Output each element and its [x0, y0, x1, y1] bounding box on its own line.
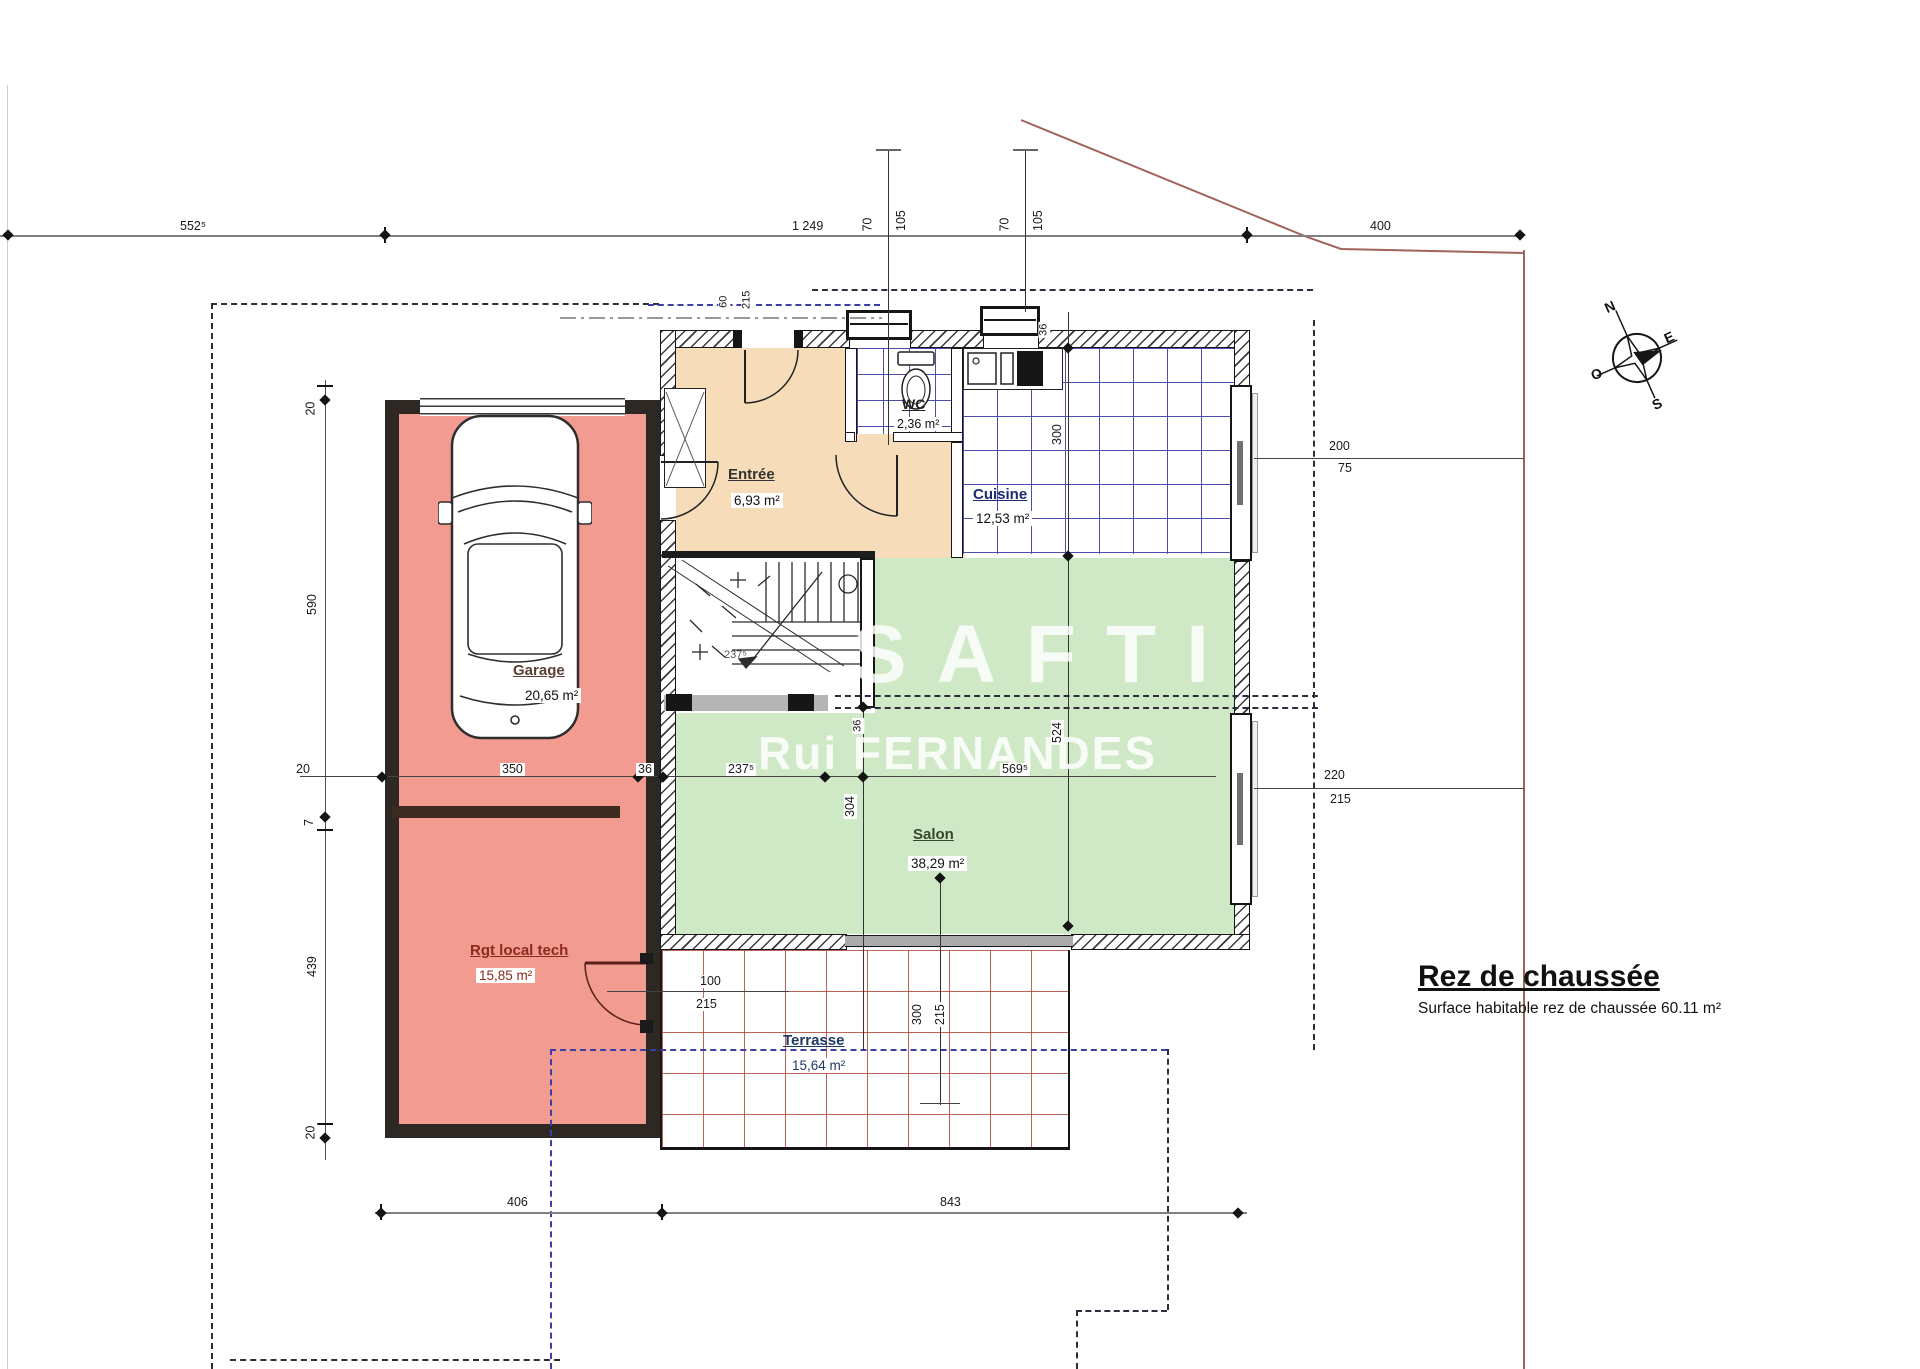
wc-window [846, 310, 912, 340]
dim-label: 237⁵ [722, 650, 749, 662]
dim-label: 590 [306, 592, 319, 617]
dim-label: 36 [1038, 322, 1050, 338]
dim-label: 20 [304, 1124, 317, 1142]
grid-line-1025 [1025, 150, 1026, 312]
dim-label: 406 [505, 1196, 530, 1209]
wc-bottom-wall-stub [845, 432, 855, 442]
dim-tick [2, 229, 13, 240]
dim-label: 36 [636, 763, 654, 776]
watermark-brand: SAFTI [852, 608, 1239, 702]
terrace-door-band [845, 935, 1073, 947]
blue-dash-entry [648, 304, 880, 306]
dim-label: 439 [306, 954, 319, 979]
kitchen-top-window-glazing [984, 319, 1036, 321]
entree-closet [664, 388, 706, 488]
boundary-dash-left [211, 303, 213, 1369]
blue-dash-terrace [550, 1049, 1167, 1051]
room-area-cuisine: 12,53 m² [973, 511, 1032, 526]
wc-bottom-wall [893, 432, 963, 442]
dim-label: 105 [895, 208, 908, 233]
kitchen-top-window [980, 306, 1040, 336]
watermark-agent: Rui FERNANDES [758, 726, 1157, 780]
boundary-step-v2 [1076, 1310, 1078, 1369]
dim-tick [317, 385, 333, 387]
dim-tick [319, 1132, 330, 1143]
callout-window-salon [1254, 788, 1524, 789]
staircase [662, 556, 875, 698]
boundary-dash-top-left [211, 303, 659, 305]
dim-label: 300 [911, 1002, 924, 1027]
kitchen-window-sill [1252, 393, 1258, 553]
dim-label: 215 [934, 1002, 947, 1027]
dim-label: 75 [1336, 462, 1354, 475]
dim-label: 36 [852, 718, 864, 734]
dim-tick [661, 1204, 663, 1220]
grid-cap-1025 [1013, 149, 1038, 151]
dim-label: 20 [294, 763, 312, 776]
dim-tick [317, 1123, 333, 1125]
dim-label: 237⁵ [726, 763, 756, 776]
salon-window-sill [1252, 721, 1258, 897]
boundary-dash-right [1313, 320, 1315, 1050]
wall-bottom-1 [660, 934, 847, 950]
grid-line-888 [888, 150, 889, 445]
dim-label: 524 [1051, 720, 1064, 745]
dim-label: 70 [861, 216, 874, 234]
compass-rose-icon: N E S O [1562, 279, 1713, 437]
floor-plan: 552⁵ 1 249 70 105 70 105 400 20 590 7 43… [0, 0, 1920, 1369]
page-border-line [7, 85, 8, 1369]
dim-label: 215 [741, 289, 753, 311]
wall-bottom-2 [1071, 934, 1250, 950]
dim-tick [1232, 1207, 1243, 1218]
dim-label: 300 [1051, 422, 1064, 447]
property-line-vertical [1523, 250, 1525, 1369]
boundary-dash-bottom-left [230, 1359, 560, 1361]
room-label-wc: WC [902, 396, 925, 412]
kitchen-counter [963, 348, 1063, 390]
room-label-cuisine: Cuisine [973, 486, 1027, 503]
garage-partition-wall [392, 806, 620, 818]
room-label-local-tech: Rgt local tech [470, 942, 568, 959]
dim-tick [380, 1204, 382, 1220]
dim-label: 105 [1032, 208, 1045, 233]
dim-label: 70 [998, 216, 1011, 234]
dim-line-terrace-depth [940, 877, 941, 1105]
dim-label: 220 [1322, 769, 1347, 782]
wall-right-1 [1234, 330, 1250, 387]
entry-door-post-right [794, 330, 803, 348]
boundary-step-v1 [1167, 1049, 1169, 1310]
dim-label: 569⁵ [1000, 763, 1030, 776]
boundary-step-h [1076, 1310, 1167, 1312]
dim-label: 215 [694, 998, 719, 1011]
dim-label: 552⁵ [178, 220, 208, 233]
page-title: Rez de chaussée [1418, 960, 1660, 994]
room-area-wc: 2,36 m² [894, 417, 942, 431]
wc-window-glazing [850, 323, 908, 325]
dim-label: 60 [718, 294, 730, 310]
dim-label: 400 [1368, 220, 1393, 233]
room-area-salon: 38,29 m² [908, 856, 967, 871]
dim-tick [1246, 227, 1248, 243]
callout-tech-door [607, 991, 789, 992]
room-area-terrasse: 15,64 m² [789, 1058, 848, 1073]
room-area-entree: 6,93 m² [731, 493, 783, 508]
room-label-garage: Garage [513, 662, 565, 679]
dim-label: 350 [500, 763, 525, 776]
dim-tick [319, 811, 330, 822]
dim-label: 200 [1327, 440, 1352, 453]
upper-floor-outline-2 [835, 707, 1318, 709]
dim-line-left [325, 380, 326, 1160]
page-subtitle: Surface habitable rez de chaussée 60.11 … [1418, 1000, 1721, 1018]
wall-top-2 [798, 330, 850, 348]
dim-label: 1 249 [790, 220, 825, 233]
room-label-entree: Entrée [728, 466, 775, 483]
dim-tick [1514, 229, 1525, 240]
kitchen-window-glazing [1237, 441, 1243, 505]
room-area-local-tech: 15,85 m² [476, 968, 535, 983]
dim-label: 304 [844, 794, 857, 819]
dim-label: 20 [304, 400, 317, 418]
wall-top-3 [910, 330, 984, 348]
dim-tick [384, 227, 386, 243]
salon-window-glazing [1237, 773, 1243, 845]
room-label-terrasse: Terrasse [783, 1032, 844, 1049]
room-label-salon: Salon [913, 826, 954, 843]
wc-right-wall [951, 348, 963, 442]
corridor-wall [951, 442, 963, 558]
dim-tick [319, 394, 330, 405]
callout-window-kitchen [1254, 458, 1524, 459]
entry-door-post-left [733, 330, 742, 348]
dim-label: 215 [1328, 793, 1353, 806]
room-area-garage: 20,65 m² [522, 688, 581, 703]
dim-line-bottom [375, 1212, 1247, 1214]
grid-cap-888 [876, 149, 901, 151]
dim-label: 7 [303, 817, 316, 828]
dim-label: 100 [698, 975, 723, 988]
blue-dash-left [550, 1049, 552, 1369]
wc-left-wall [845, 348, 857, 442]
dim-line-top [0, 235, 1524, 237]
dim-tick [317, 829, 333, 831]
dim-label: 843 [938, 1196, 963, 1209]
dim-terrace-end-tick [920, 1103, 960, 1104]
